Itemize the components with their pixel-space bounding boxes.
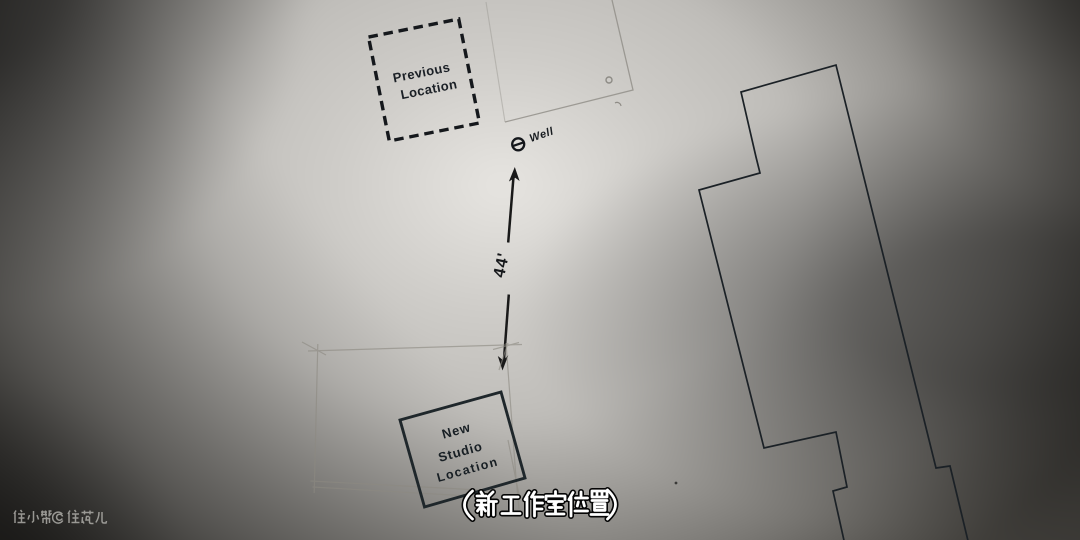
svg-text:New: New — [440, 419, 472, 441]
svg-text:Well: Well — [528, 125, 556, 145]
svg-text:44': 44' — [490, 251, 513, 279]
